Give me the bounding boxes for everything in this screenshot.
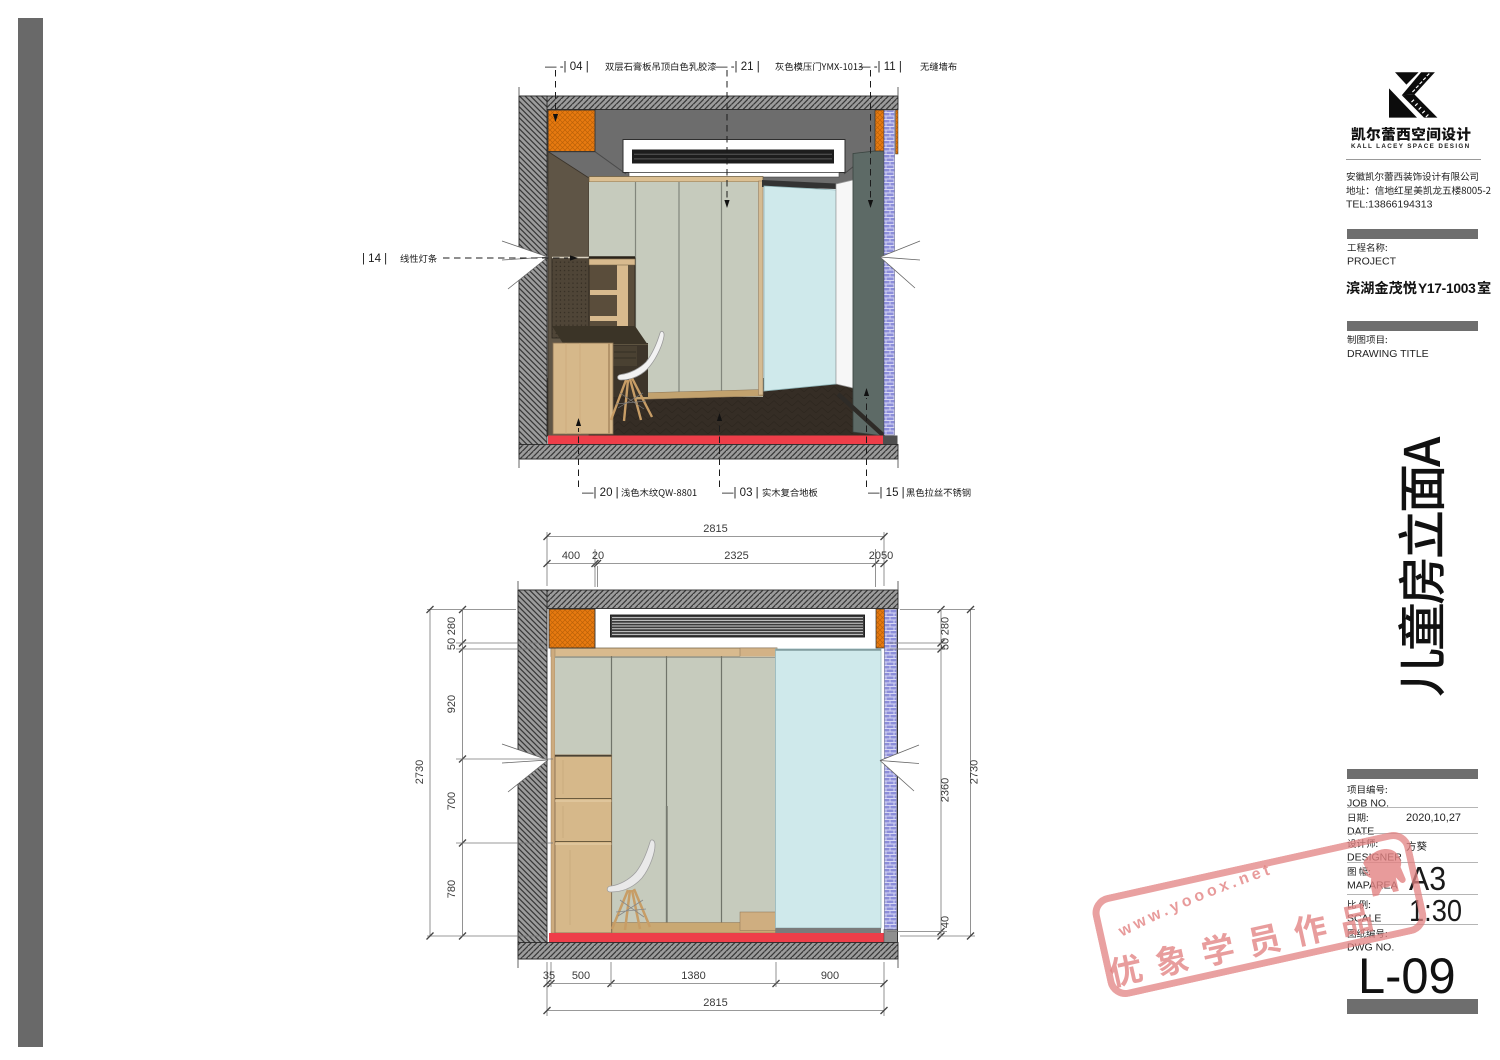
svg-text:20: 20: [592, 550, 604, 562]
svg-text:780: 780: [446, 880, 458, 898]
svg-text:2325: 2325: [724, 550, 748, 562]
svg-text:900: 900: [821, 970, 839, 982]
svg-text:— -| 04 |: — -| 04 |: [545, 61, 589, 73]
svg-text:PROJECT: PROJECT: [1347, 256, 1397, 268]
svg-text:40: 40: [940, 916, 952, 928]
svg-text:| 14 |: | 14 |: [362, 253, 387, 265]
svg-text:2815: 2815: [703, 997, 727, 1009]
svg-text:50: 50: [446, 638, 458, 650]
svg-text:TEL:13866194313: TEL:13866194313: [1346, 199, 1433, 211]
svg-text:280: 280: [446, 617, 458, 635]
svg-text:1380: 1380: [681, 970, 705, 982]
svg-text:2360: 2360: [940, 778, 952, 802]
svg-text:700: 700: [446, 792, 458, 810]
svg-text:— -| 11 |: — -| 11 |: [859, 61, 902, 73]
svg-text:50: 50: [940, 638, 952, 650]
svg-text:— -| 21 |: — -| 21 |: [716, 61, 760, 73]
svg-text:DRAWING TITLE: DRAWING TITLE: [1347, 348, 1429, 360]
svg-text:2730: 2730: [414, 760, 426, 784]
svg-text:920: 920: [446, 695, 458, 713]
svg-text:Y17-1003: Y17-1003: [1418, 281, 1476, 296]
svg-text:2815: 2815: [703, 523, 727, 535]
svg-text:—| 03 |: —| 03 |: [722, 487, 759, 499]
svg-text:—| 20 |: —| 20 |: [582, 487, 619, 499]
svg-text:—| 15 |: —| 15 |: [868, 487, 905, 499]
svg-text:35: 35: [543, 970, 555, 982]
svg-text:400: 400: [562, 550, 580, 562]
svg-text:2050: 2050: [869, 550, 893, 562]
svg-text:280: 280: [940, 617, 952, 635]
svg-text:500: 500: [572, 970, 590, 982]
svg-text:2730: 2730: [969, 760, 981, 784]
